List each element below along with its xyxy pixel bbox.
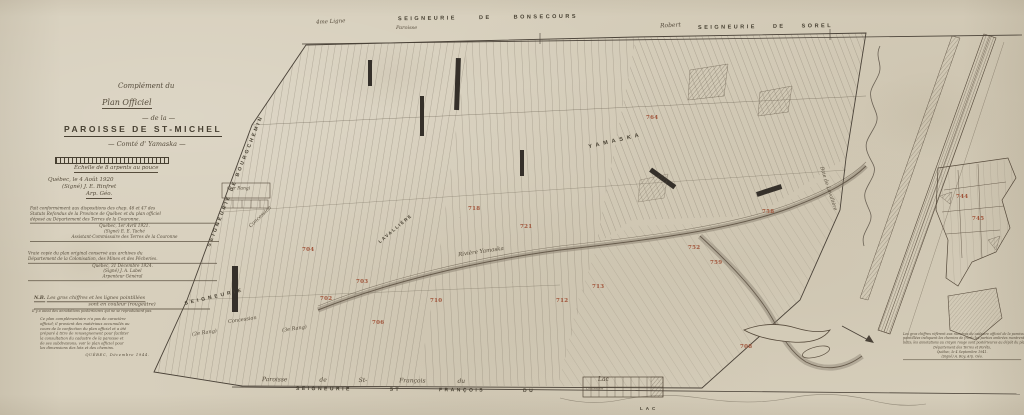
- lot-number: 706: [372, 320, 384, 326]
- copy-line: Département de la Colonisation, des Mine…: [28, 256, 217, 263]
- lot-number: 721: [520, 224, 532, 230]
- title-line-de-la: — de la —: [142, 114, 175, 122]
- lot-number: 752: [688, 245, 700, 251]
- winding-stream: [863, 46, 880, 246]
- lot-number: 745: [972, 216, 984, 222]
- lot-number: 702: [320, 296, 332, 302]
- lot-number: 758: [762, 209, 774, 215]
- map-sheet: Complément du Plan Officiel — de la — PA…: [0, 0, 1024, 415]
- nb-subline-2: Il y a aussi des annotations postérieure…: [32, 309, 362, 317]
- top-boundary-paroisse-script: Paroisse: [396, 25, 417, 31]
- bottom-lac-script: Lac: [598, 376, 609, 383]
- map-label-premier-rang: (1er Rang): [227, 186, 250, 191]
- certification-line: déposé au Département des Terres de la C…: [30, 217, 219, 224]
- title-line-plan-officiel: Plan Officiel: [102, 98, 152, 109]
- copy-title: Arpenteur Général: [28, 274, 217, 281]
- lot-number: 759: [710, 260, 722, 266]
- lot-number: 703: [356, 279, 368, 285]
- lot-number: 744: [956, 194, 968, 200]
- survey-note-signature: (Signé) J. E. Rinfret: [62, 184, 116, 190]
- survey-note-date: Québec, le 4 Août 1920: [48, 177, 113, 183]
- scale-bar: [55, 157, 169, 164]
- lot-number: 710: [430, 298, 442, 304]
- nb-place-date: QUÉBEC, Décembre 1944.: [40, 353, 195, 358]
- arrow-annotation: [842, 326, 874, 343]
- certification-title: Assistant-Commissaire des Terres de la C…: [30, 235, 219, 242]
- lot-number: 708: [740, 344, 752, 350]
- lot-number: 764: [646, 115, 658, 121]
- lot-number: 704: [302, 247, 314, 253]
- nb-paragraph: Ce plan complémentaire n'a pas de caract…: [40, 317, 290, 382]
- nb-paragraph-line: les dimensions des lots et des chemins.: [40, 346, 195, 351]
- corner-signature: (Signé) A. Roy, Arp. Géo.: [903, 355, 1021, 360]
- bottom-lac-caps: LAC: [640, 406, 658, 411]
- ladder-label: Concession: [586, 387, 621, 395]
- copy-note: Vraie copie du plan original conservé au…: [28, 251, 298, 294]
- survey-note-title: Arp. Géo.: [86, 191, 112, 199]
- corner-line: bâtis; les annotations au crayon rouge s…: [903, 341, 1021, 345]
- lot-number: 718: [468, 206, 480, 212]
- top-boundary-robert-script: Robert: [660, 21, 681, 29]
- title-subtitle: — Comté d' Yamaska —: [108, 140, 186, 148]
- title-line-complement: Complément du: [118, 82, 174, 90]
- lot-number: 712: [556, 298, 568, 304]
- corner-note: Les gros chiffres réfèrent aux numéros d…: [903, 332, 1024, 383]
- lot-number: 713: [592, 284, 604, 290]
- village-inset: [936, 158, 1016, 340]
- page-title: PAROISSE DE ST-MICHEL: [64, 124, 222, 137]
- nb-subline-2-text: Il y a aussi des annotations postérieure…: [32, 309, 223, 314]
- scale-caption: Échelle de 8 arpents au pouce: [74, 165, 158, 173]
- ladder-label-text: Concession: [586, 387, 603, 391]
- nb-heading: N.B.: [34, 295, 45, 302]
